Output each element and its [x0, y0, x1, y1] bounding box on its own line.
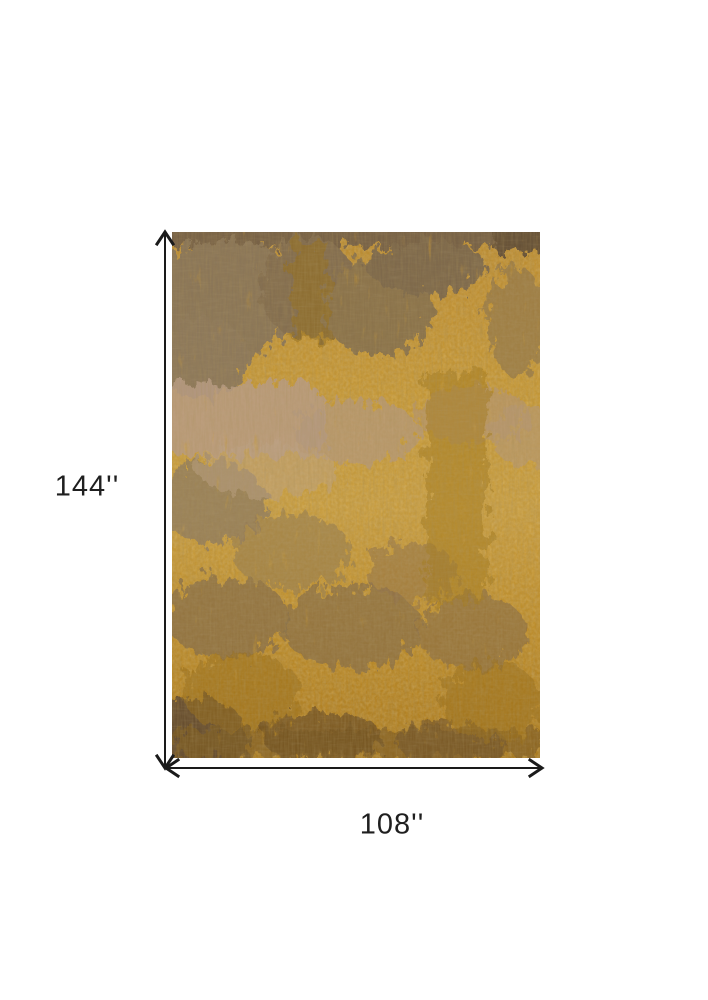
- rug-texture: [172, 232, 540, 758]
- arrow-left-icon: [166, 760, 178, 776]
- width-dimension-label: 108'': [360, 809, 424, 842]
- rug-image: [172, 232, 540, 758]
- height-arrow: [157, 232, 173, 768]
- width-arrow: [166, 760, 542, 776]
- height-dimension-label: 144'': [55, 471, 119, 504]
- arrow-right-icon: [530, 760, 542, 776]
- product-dimension-diagram: 144'' 108'': [0, 0, 708, 1000]
- arrow-down-icon: [157, 756, 173, 768]
- arrow-up-icon: [157, 232, 173, 244]
